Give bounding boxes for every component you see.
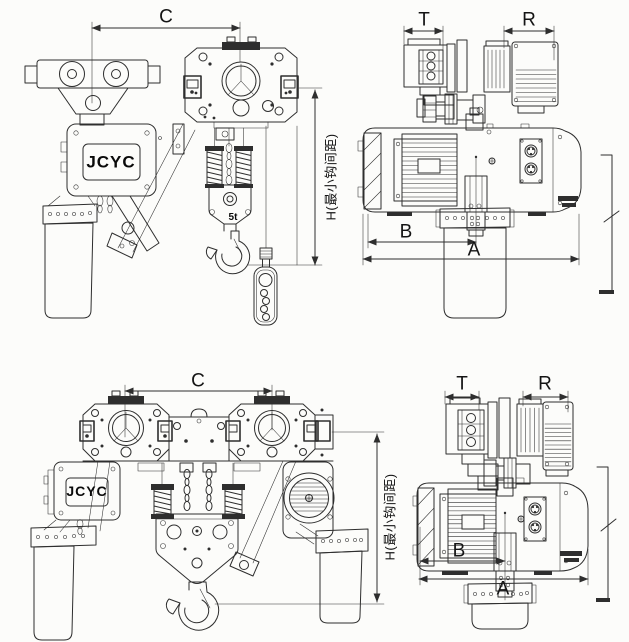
technical-drawing-canvas bbox=[0, 0, 629, 642]
suspension-bracket-right bbox=[226, 391, 333, 461]
dim-label-b-bottom: B bbox=[453, 542, 466, 561]
capacity-marking: 5t bbox=[229, 213, 238, 223]
dim-label-t-bottom: T bbox=[456, 375, 468, 394]
dim-line-c bbox=[125, 385, 272, 437]
chain-strand bbox=[206, 469, 212, 510]
dim-label-r-top: R bbox=[522, 11, 536, 30]
chain-container-left bbox=[31, 526, 96, 640]
hook bbox=[166, 582, 218, 630]
travel-drive-unit bbox=[446, 398, 510, 490]
hoist-control-box bbox=[61, 124, 195, 258]
dim-label-a-top: A bbox=[468, 241, 481, 260]
dim-line-h bbox=[248, 88, 322, 265]
brand-nameplate-top: JCYC bbox=[86, 154, 135, 171]
dim-label-h-top: H(最小钩间距) bbox=[325, 133, 338, 220]
chain-and-buffer-springs bbox=[205, 128, 253, 188]
bottom-side-view-drawing bbox=[413, 391, 616, 629]
dim-label-t-top: T bbox=[418, 11, 430, 30]
dim-label-b-top: B bbox=[400, 223, 413, 242]
dim-label-h-bottom: H(最小钩间距) bbox=[384, 473, 397, 560]
scanned-technical-drawing-page: C H(最小钩间距) JCYC 5t T R B A C H(最小钩间距) JC… bbox=[0, 0, 629, 642]
hoist-motor-unit bbox=[484, 41, 558, 113]
suspension-bracket-left bbox=[80, 391, 172, 461]
chain-container-left bbox=[43, 196, 97, 318]
height-reference-line bbox=[596, 467, 616, 602]
dim-label-c-top: C bbox=[159, 8, 173, 27]
dim-line-b bbox=[368, 214, 476, 248]
dim-label-a-bottom: A bbox=[497, 580, 510, 599]
top-side-view-drawing bbox=[358, 26, 619, 318]
dim-label-r-bottom: R bbox=[538, 375, 552, 394]
double-chain-falls bbox=[151, 461, 296, 576]
dim-line-t bbox=[404, 26, 443, 56]
pendant-control bbox=[254, 126, 297, 325]
trolley bbox=[25, 60, 160, 125]
chain-container-right bbox=[316, 529, 368, 623]
hook bbox=[206, 231, 249, 274]
hook-block bbox=[209, 185, 251, 231]
bottom-front-view-drawing bbox=[31, 385, 384, 640]
top-front-view-drawing bbox=[25, 22, 322, 325]
chain-container-side bbox=[436, 208, 514, 318]
dim-label-c-bottom: C bbox=[191, 372, 205, 391]
height-reference-line bbox=[599, 155, 619, 294]
bottom-block bbox=[156, 514, 238, 584]
brand-nameplate-bottom: JCYC bbox=[66, 484, 107, 498]
chain-strand bbox=[184, 469, 190, 510]
dim-line-c bbox=[92, 22, 240, 103]
suspension-bracket bbox=[184, 37, 298, 128]
